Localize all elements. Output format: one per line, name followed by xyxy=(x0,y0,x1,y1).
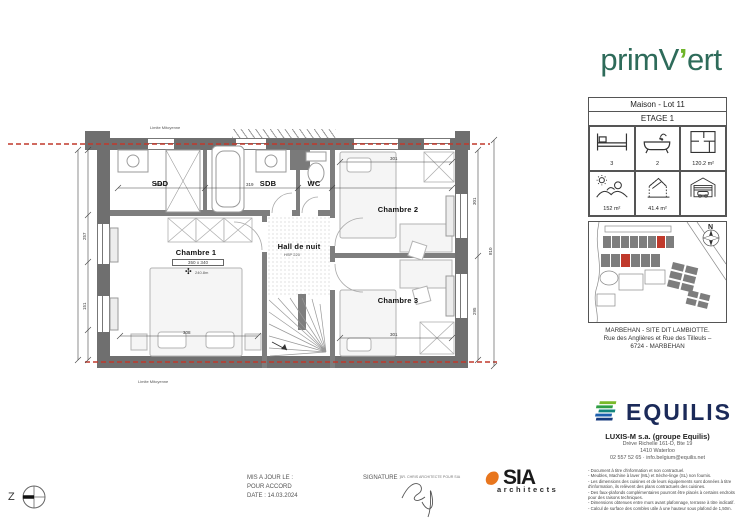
signature-label: SIGNATURE : xyxy=(363,474,401,483)
bedrooms-count: 3 xyxy=(610,161,613,168)
updated-label: MIS A JOUR LE : xyxy=(247,474,298,483)
z-orientation: Z xyxy=(8,483,48,511)
house-gable-icon xyxy=(643,175,671,199)
dim-label: 810 xyxy=(488,247,493,255)
equilis-stripes-icon xyxy=(592,398,620,426)
primvert-text-1: primV xyxy=(600,42,678,77)
bathtub-inner xyxy=(216,151,240,207)
info-cell-bathrooms: 2 xyxy=(635,126,681,171)
primvert-logo: primV’ert xyxy=(592,42,730,78)
garden-area-value: 152 m² xyxy=(603,206,620,213)
radiator xyxy=(446,276,454,316)
room-label-sdd: SDD xyxy=(138,179,182,188)
room-label-sdb: SDB xyxy=(246,179,290,188)
equilis-address-line2: 1410 Waterloo xyxy=(588,448,727,455)
site-lot-highlight-2 xyxy=(621,254,630,267)
hall-note: HSP 220 xyxy=(284,252,300,257)
equilis-wordmark: EQUILIS xyxy=(626,399,732,426)
primvert-apostrophe: ’ xyxy=(679,42,687,77)
floor-area-value: 120.2 m² xyxy=(692,161,714,168)
pillow xyxy=(158,332,186,348)
limite-mitoyenne-bottom: Limite Mitoyenne xyxy=(138,379,168,384)
info-cell-garden: 152 m² xyxy=(589,171,635,216)
info-cell-bedrooms: 3 xyxy=(589,126,635,171)
signature-scribble xyxy=(398,478,458,518)
lot-title: Maison - Lot 11 xyxy=(589,98,726,112)
site-address-line1: MARBEHAN - SITE DIT LAMBIOTTE. xyxy=(584,327,731,335)
info-cell-garage xyxy=(680,171,726,216)
approval-block: MIS A JOUR LE : POUR ACCORD DATE : 14.03… xyxy=(247,474,298,501)
bathtub-icon xyxy=(640,130,674,154)
chambre1-fan-note: 240.8m xyxy=(195,270,208,275)
fan-icon: ✣ xyxy=(185,267,192,276)
disclaimer: - Document à titre d'information et non … xyxy=(588,468,733,511)
date-label: DATE : 14.03.2024 xyxy=(247,492,298,501)
dim-label: 308 xyxy=(183,330,191,335)
info-cell-volume: 41.4 m² xyxy=(635,171,681,216)
limite-mitoyenne-top: Limite Mitoyenne xyxy=(150,125,180,130)
dim-label: 301 xyxy=(472,197,477,205)
site-address-line2: Rue des Anglières et Rue des Tilleuls – xyxy=(584,335,731,343)
sia-sub-label: architects xyxy=(497,485,554,494)
sink-sdb-bowl xyxy=(265,155,277,167)
sink-sdd-bowl xyxy=(127,155,139,167)
pillow xyxy=(347,338,371,351)
floorplan-icon xyxy=(688,130,718,154)
disclaimer-line: - Calcul de surface des combles utile à … xyxy=(588,506,733,511)
lot-info-table: Maison - Lot 11 ETAGE 1 3 2 120.2 xyxy=(588,97,727,217)
dim-label: 151 xyxy=(82,302,87,310)
nightstand xyxy=(131,334,147,350)
radiator xyxy=(110,298,118,330)
room-label-chambre2: Chambre 2 xyxy=(358,205,438,214)
floor-title: ETAGE 1 xyxy=(589,112,726,126)
equilis-company: LUXIS-M s.a. (groupe Equilis) xyxy=(588,432,727,441)
garage-icon xyxy=(688,175,718,199)
room-label-chambre3: Chambre 3 xyxy=(358,296,438,305)
site-address-line3: 6724 - MARBEHAN xyxy=(584,343,731,351)
dim-label: 301 xyxy=(390,156,398,161)
primvert-text-2: ert xyxy=(687,42,722,77)
radiator xyxy=(110,228,118,262)
site-plan-map: N xyxy=(589,222,726,322)
z-label: Z xyxy=(8,491,15,503)
floor-plan-sheet: 320 319 301 301 308 257 151 301 295 810 … xyxy=(0,0,736,518)
radiator xyxy=(446,196,454,236)
north-compass-icon: N xyxy=(703,224,719,246)
staircase xyxy=(269,294,326,356)
pillow xyxy=(206,332,234,348)
sia-logo: SIA architects xyxy=(484,469,554,494)
bathrooms-count: 2 xyxy=(656,161,659,168)
volume-area-value: 41.4 m² xyxy=(648,206,667,213)
wardrobe-chambre1 xyxy=(168,218,252,242)
wardrobe-chambre2 xyxy=(424,152,454,182)
room-label-wc: WC xyxy=(300,179,328,188)
toilet-tank xyxy=(306,152,326,161)
site-lot-highlight xyxy=(657,236,665,248)
equilis-address-line1: Drève Richelle 161-D, Bte 19 xyxy=(588,441,727,448)
dim-label: 295 xyxy=(472,307,477,315)
bed-icon xyxy=(595,130,629,154)
equilis-address: Drève Richelle 161-D, Bte 19 1410 Waterl… xyxy=(588,441,727,462)
garden-icon xyxy=(595,175,629,199)
site-address: MARBEHAN - SITE DIT LAMBIOTTE. Rue des A… xyxy=(584,327,731,351)
pillow xyxy=(347,158,371,172)
sia-orange-icon xyxy=(484,470,501,487)
room-label-hall: Hall de nuit xyxy=(260,242,338,251)
chambre1-dim-box: 350 x 340 xyxy=(172,259,224,266)
nightstand xyxy=(245,334,261,350)
dim-label: 301 xyxy=(390,332,398,337)
info-cell-floor-area: 120.2 m² xyxy=(680,126,726,171)
orientation-compass-icon xyxy=(18,483,48,511)
equilis-logo: EQUILIS xyxy=(592,398,732,426)
site-plan: N xyxy=(588,221,727,323)
equilis-contact: 02 557 52 65 · info.belgium@equilis.net xyxy=(588,455,727,462)
dim-label: 257 xyxy=(82,232,87,240)
room-label-chambre1: Chambre 1 xyxy=(156,248,236,257)
approval-label: POUR ACCORD xyxy=(247,483,298,492)
desk-chambre3 xyxy=(400,260,452,288)
north-label: N xyxy=(708,224,713,231)
